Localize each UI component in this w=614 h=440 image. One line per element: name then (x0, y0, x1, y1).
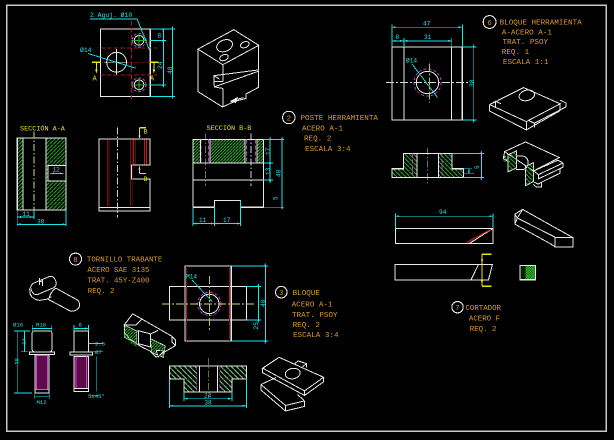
svg-text:ESCALA 3:4: ESCALA 3:4 (305, 146, 351, 154)
svg-text:BLOQUE: BLOQUE (293, 290, 321, 298)
svg-text:M12: M12 (37, 399, 47, 406)
svg-text:8: 8 (158, 33, 162, 40)
svg-text:40: 40 (276, 169, 283, 177)
svg-text:6: 6 (487, 20, 491, 28)
svg-text:24: 24 (157, 61, 164, 69)
svg-text:REQ. 2: REQ. 2 (470, 326, 497, 334)
svg-text:11: 11 (199, 217, 207, 224)
svg-text:Ø16: Ø16 (13, 322, 23, 329)
svg-text:8: 8 (396, 34, 400, 41)
svg-text:47: 47 (423, 20, 431, 27)
svg-text:3: 3 (279, 290, 283, 298)
svg-text:2 Aguj. Ø10: 2 Aguj. Ø10 (90, 11, 132, 19)
svg-text:REQ. 2: REQ. 2 (88, 288, 115, 296)
svg-text:11: 11 (23, 211, 31, 218)
svg-text:SECCIÓN B-B: SECCIÓN B-B (207, 123, 252, 133)
svg-text:38: 38 (14, 358, 21, 365)
svg-text:5x45°: 5x45° (88, 393, 105, 400)
svg-text:25: 25 (253, 322, 260, 330)
svg-text:TRAT. 45Y-Z400: TRAT. 45Y-Z400 (87, 277, 149, 285)
svg-text:R16: R16 (36, 322, 46, 329)
svg-text:A-ACERO A-1: A-ACERO A-1 (502, 29, 553, 37)
svg-text:14: 14 (20, 337, 27, 344)
svg-text:2.5: 2.5 (95, 341, 105, 348)
svg-text:40: 40 (260, 299, 267, 307)
svg-text:8: 8 (79, 322, 82, 329)
svg-text:Ø14: Ø14 (80, 46, 92, 54)
svg-text:B: B (144, 176, 148, 183)
svg-text:17: 17 (265, 147, 272, 155)
svg-text:REQ. 2: REQ. 2 (293, 322, 321, 330)
svg-text:ACERO SAE 3135: ACERO SAE 3135 (87, 267, 149, 275)
svg-text:REQ. 1: REQ. 1 (502, 49, 530, 57)
svg-text:38: 38 (37, 218, 45, 225)
svg-text:POSTE HERRAMIENTA: POSTE HERRAMIENTA (301, 115, 379, 123)
svg-text:94: 94 (439, 209, 447, 216)
svg-text:8: 8 (73, 257, 77, 265)
svg-text:Ø14: Ø14 (406, 58, 417, 65)
svg-text:5: 5 (474, 165, 481, 169)
svg-text:TORNILLO TRABANTE: TORNILLO TRABANTE (87, 257, 163, 265)
svg-text:ESCALA 1:1: ESCALA 1:1 (503, 59, 549, 67)
svg-text:ACERO F: ACERO F (469, 315, 500, 323)
svg-text:13: 13 (265, 167, 272, 175)
svg-text:12: 12 (53, 167, 61, 174)
svg-text:7: 7 (455, 305, 459, 313)
svg-text:38: 38 (204, 400, 212, 407)
svg-text:38: 38 (469, 79, 476, 87)
svg-text:TRAT. PSOY: TRAT. PSOY (292, 312, 338, 320)
svg-text:24: 24 (204, 392, 212, 399)
svg-text:48: 48 (167, 66, 174, 74)
svg-text:TRAT. PSOY: TRAT. PSOY (503, 39, 549, 47)
svg-text:REQ. 2: REQ. 2 (304, 135, 332, 143)
svg-text:Ø7: Ø7 (95, 349, 102, 356)
svg-text:5: 5 (273, 196, 280, 200)
svg-text:B: B (144, 129, 148, 136)
svg-text:ACERO A-1: ACERO A-1 (302, 125, 343, 133)
svg-text:BLOQUE HERRAMIENTA: BLOQUE HERRAMIENTA (500, 20, 582, 28)
svg-text:CORTADOR: CORTADOR (466, 305, 502, 313)
svg-text:31: 31 (424, 34, 432, 41)
svg-text:M14: M14 (186, 274, 197, 281)
svg-text:2: 2 (287, 115, 291, 123)
svg-text:SECCIÓN A-A: SECCIÓN A-A (20, 124, 66, 134)
svg-text:17: 17 (223, 217, 231, 224)
svg-text:ESCALA 3:4: ESCALA 3:4 (293, 332, 339, 340)
svg-text:ACERO A-1: ACERO A-1 (292, 301, 333, 309)
